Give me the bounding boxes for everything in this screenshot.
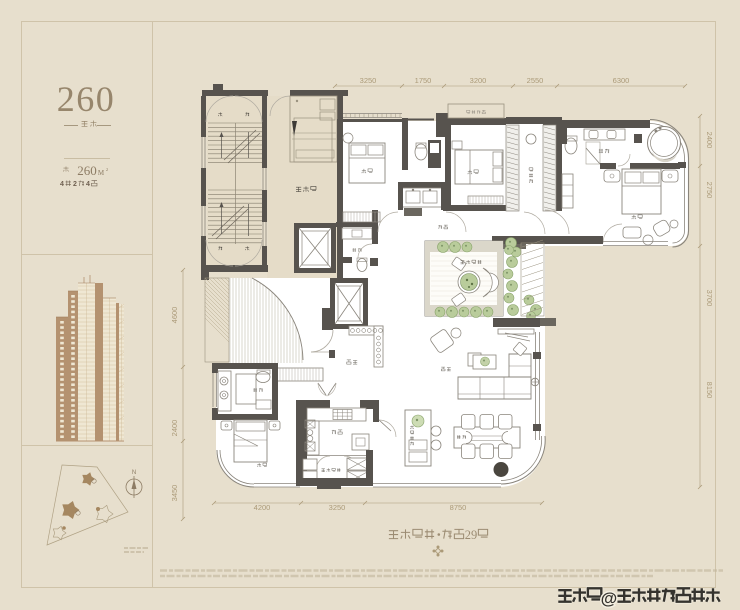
svg-text:4600: 4600 — [170, 307, 179, 324]
svg-text:3450: 3450 — [170, 485, 179, 502]
svg-text:4: 4 — [60, 181, 64, 188]
svg-text:2: 2 — [73, 181, 77, 188]
svg-text:8150: 8150 — [705, 382, 714, 399]
svg-text:260: 260 — [77, 163, 97, 178]
svg-text:3250: 3250 — [329, 503, 346, 512]
svg-text:6300: 6300 — [613, 76, 630, 85]
svg-text:3700: 3700 — [705, 290, 714, 307]
svg-text:260: 260 — [57, 79, 116, 119]
svg-text:2400: 2400 — [705, 132, 714, 149]
svg-text:@: @ — [601, 589, 618, 608]
svg-text:2550: 2550 — [527, 76, 544, 85]
svg-text:3250: 3250 — [360, 76, 377, 85]
svg-text:N: N — [132, 470, 136, 476]
svg-text:2750: 2750 — [705, 182, 714, 199]
svg-text:4: 4 — [86, 181, 90, 188]
svg-text:2: 2 — [106, 167, 108, 172]
svg-text:29: 29 — [465, 528, 478, 542]
svg-text:8750: 8750 — [450, 503, 467, 512]
svg-text:3200: 3200 — [470, 76, 487, 85]
svg-text:M: M — [98, 169, 105, 177]
svg-text:2400: 2400 — [170, 420, 179, 437]
svg-text:1750: 1750 — [415, 76, 432, 85]
svg-text:4200: 4200 — [254, 503, 271, 512]
